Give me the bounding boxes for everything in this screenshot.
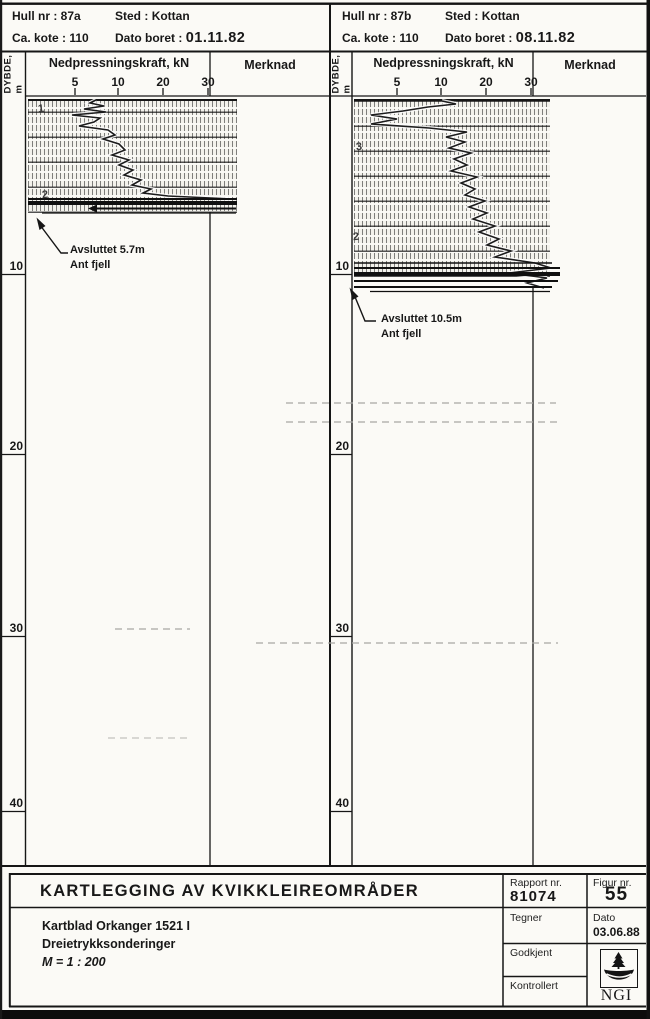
depth-tick-lines	[2, 275, 352, 812]
depth-axis-label-87a: DYBDE, m	[2, 52, 25, 96]
rapport-nr-value: 81074	[510, 888, 557, 905]
force-axis-title-87a: Nedpressningskraft, kN	[30, 56, 208, 70]
dato-label: Dato	[593, 912, 615, 924]
sted-value: Kottan	[482, 9, 520, 23]
godkjent-label: Godkjent	[510, 947, 552, 959]
force-tick-10: 10	[434, 75, 447, 89]
annotation-line1: Avsluttet 5.7m	[70, 243, 145, 258]
annotation-leader-87b	[350, 288, 377, 322]
kote-field-87a: Ca. kote : 110	[12, 31, 89, 45]
strip-mark: 2	[352, 231, 359, 243]
depth-label-20: 20	[330, 439, 349, 453]
force-tick-20: 20	[156, 75, 169, 89]
ngi-logo-text: NGI	[587, 987, 646, 1005]
kontrollert-label: Kontrollert	[510, 980, 558, 992]
hull-nr-value: 87a	[61, 9, 81, 23]
force-tick-30: 30	[201, 75, 214, 89]
termination-bands-87a	[28, 199, 237, 213]
document-title: KARTLEGGING AV KVIKKLEIREOMRÅDER	[40, 882, 419, 901]
dato-boret-field-87a: Dato boret : 01.11.82	[115, 30, 245, 46]
kote-field-87b: Ca. kote : 110	[342, 31, 419, 45]
hull-nr-label: Hull nr :	[342, 9, 387, 23]
linework-layer	[0, 0, 650, 1019]
strip-mark: 3	[355, 141, 362, 153]
dato-boret-label: Dato boret :	[115, 31, 182, 45]
frame-lines	[2, 4, 647, 866]
dato-boret-value: 08.11.82	[516, 30, 576, 46]
hull-nr-label: Hull nr :	[12, 9, 57, 23]
termination-annotation-87b: Avsluttet 10.5m Ant fjell	[381, 312, 462, 342]
dato-boret-label: Dato boret :	[445, 31, 512, 45]
annotation-line2: Ant fjell	[70, 258, 145, 273]
ngi-logo-frame	[600, 949, 638, 988]
merknad-column-title-87b: Merknad	[535, 58, 645, 72]
sounding-trace-87a	[72, 100, 232, 199]
depth-label-20: 20	[2, 439, 23, 453]
termination-annotation-87a: Avsluttet 5.7m Ant fjell	[70, 243, 145, 273]
force-axis-title-87b: Nedpressningskraft, kN	[356, 56, 531, 70]
scanned-sounding-log: Hull nr : 87a Sted : Kottan Ca. kote : 1…	[0, 0, 650, 1019]
dato-value: 03.06.88	[593, 925, 640, 939]
depth-label-30: 30	[2, 621, 23, 635]
depth-label-30: 30	[330, 621, 349, 635]
force-tick-5: 5	[394, 75, 401, 89]
force-axis-tick-marks	[75, 88, 531, 95]
depth-label-40: 40	[330, 796, 349, 810]
force-tick-5: 5	[72, 75, 79, 89]
strip-mark: 1	[37, 103, 44, 115]
hull-nr-field-87a: Hull nr : 87a	[12, 9, 81, 23]
sted-field-87b: Sted : Kottan	[445, 9, 520, 23]
sted-label: Sted :	[445, 9, 478, 23]
kote-value: 110	[69, 31, 88, 45]
sted-value: Kottan	[152, 9, 190, 23]
depth-label-10: 10	[330, 259, 349, 273]
hull-nr-field-87b: Hull nr : 87b	[342, 9, 411, 23]
figur-nr-value: 55	[587, 884, 646, 906]
force-tick-10: 10	[111, 75, 124, 89]
annotation-line1: Avsluttet 10.5m	[381, 312, 462, 327]
strip-mark: 2	[41, 189, 48, 201]
kote-label: Ca. kote :	[12, 31, 66, 45]
force-tick-20: 20	[479, 75, 492, 89]
sounding-trace-87b	[371, 101, 551, 288]
method-line: Dreietrykksonderinger	[42, 937, 175, 951]
ngi-tree-boat-icon	[601, 950, 637, 987]
dato-boret-value: 01.11.82	[186, 30, 246, 46]
depth-label-10: 10	[2, 259, 23, 273]
annotation-leader-87a	[37, 218, 69, 254]
merknad-column-title-87a: Merknad	[212, 58, 328, 72]
depth-label-40: 40	[2, 796, 23, 810]
tegner-label: Tegner	[510, 912, 542, 924]
sted-label: Sted :	[115, 9, 148, 23]
depth-axis-label-87b: DYBDE, m	[330, 52, 352, 96]
kote-value: 110	[399, 31, 418, 45]
force-tick-30: 30	[524, 75, 537, 89]
annotation-line2: Ant fjell	[381, 327, 462, 342]
sted-field-87a: Sted : Kottan	[115, 9, 190, 23]
hull-nr-value: 87b	[391, 9, 412, 23]
map-sheet-line: Kartblad Orkanger 1521 I	[42, 919, 190, 933]
kote-label: Ca. kote :	[342, 31, 396, 45]
scale-line: M = 1 : 200	[42, 955, 106, 969]
scan-smudge-lines	[108, 403, 560, 738]
dato-boret-field-87b: Dato boret : 08.11.82	[445, 30, 575, 46]
